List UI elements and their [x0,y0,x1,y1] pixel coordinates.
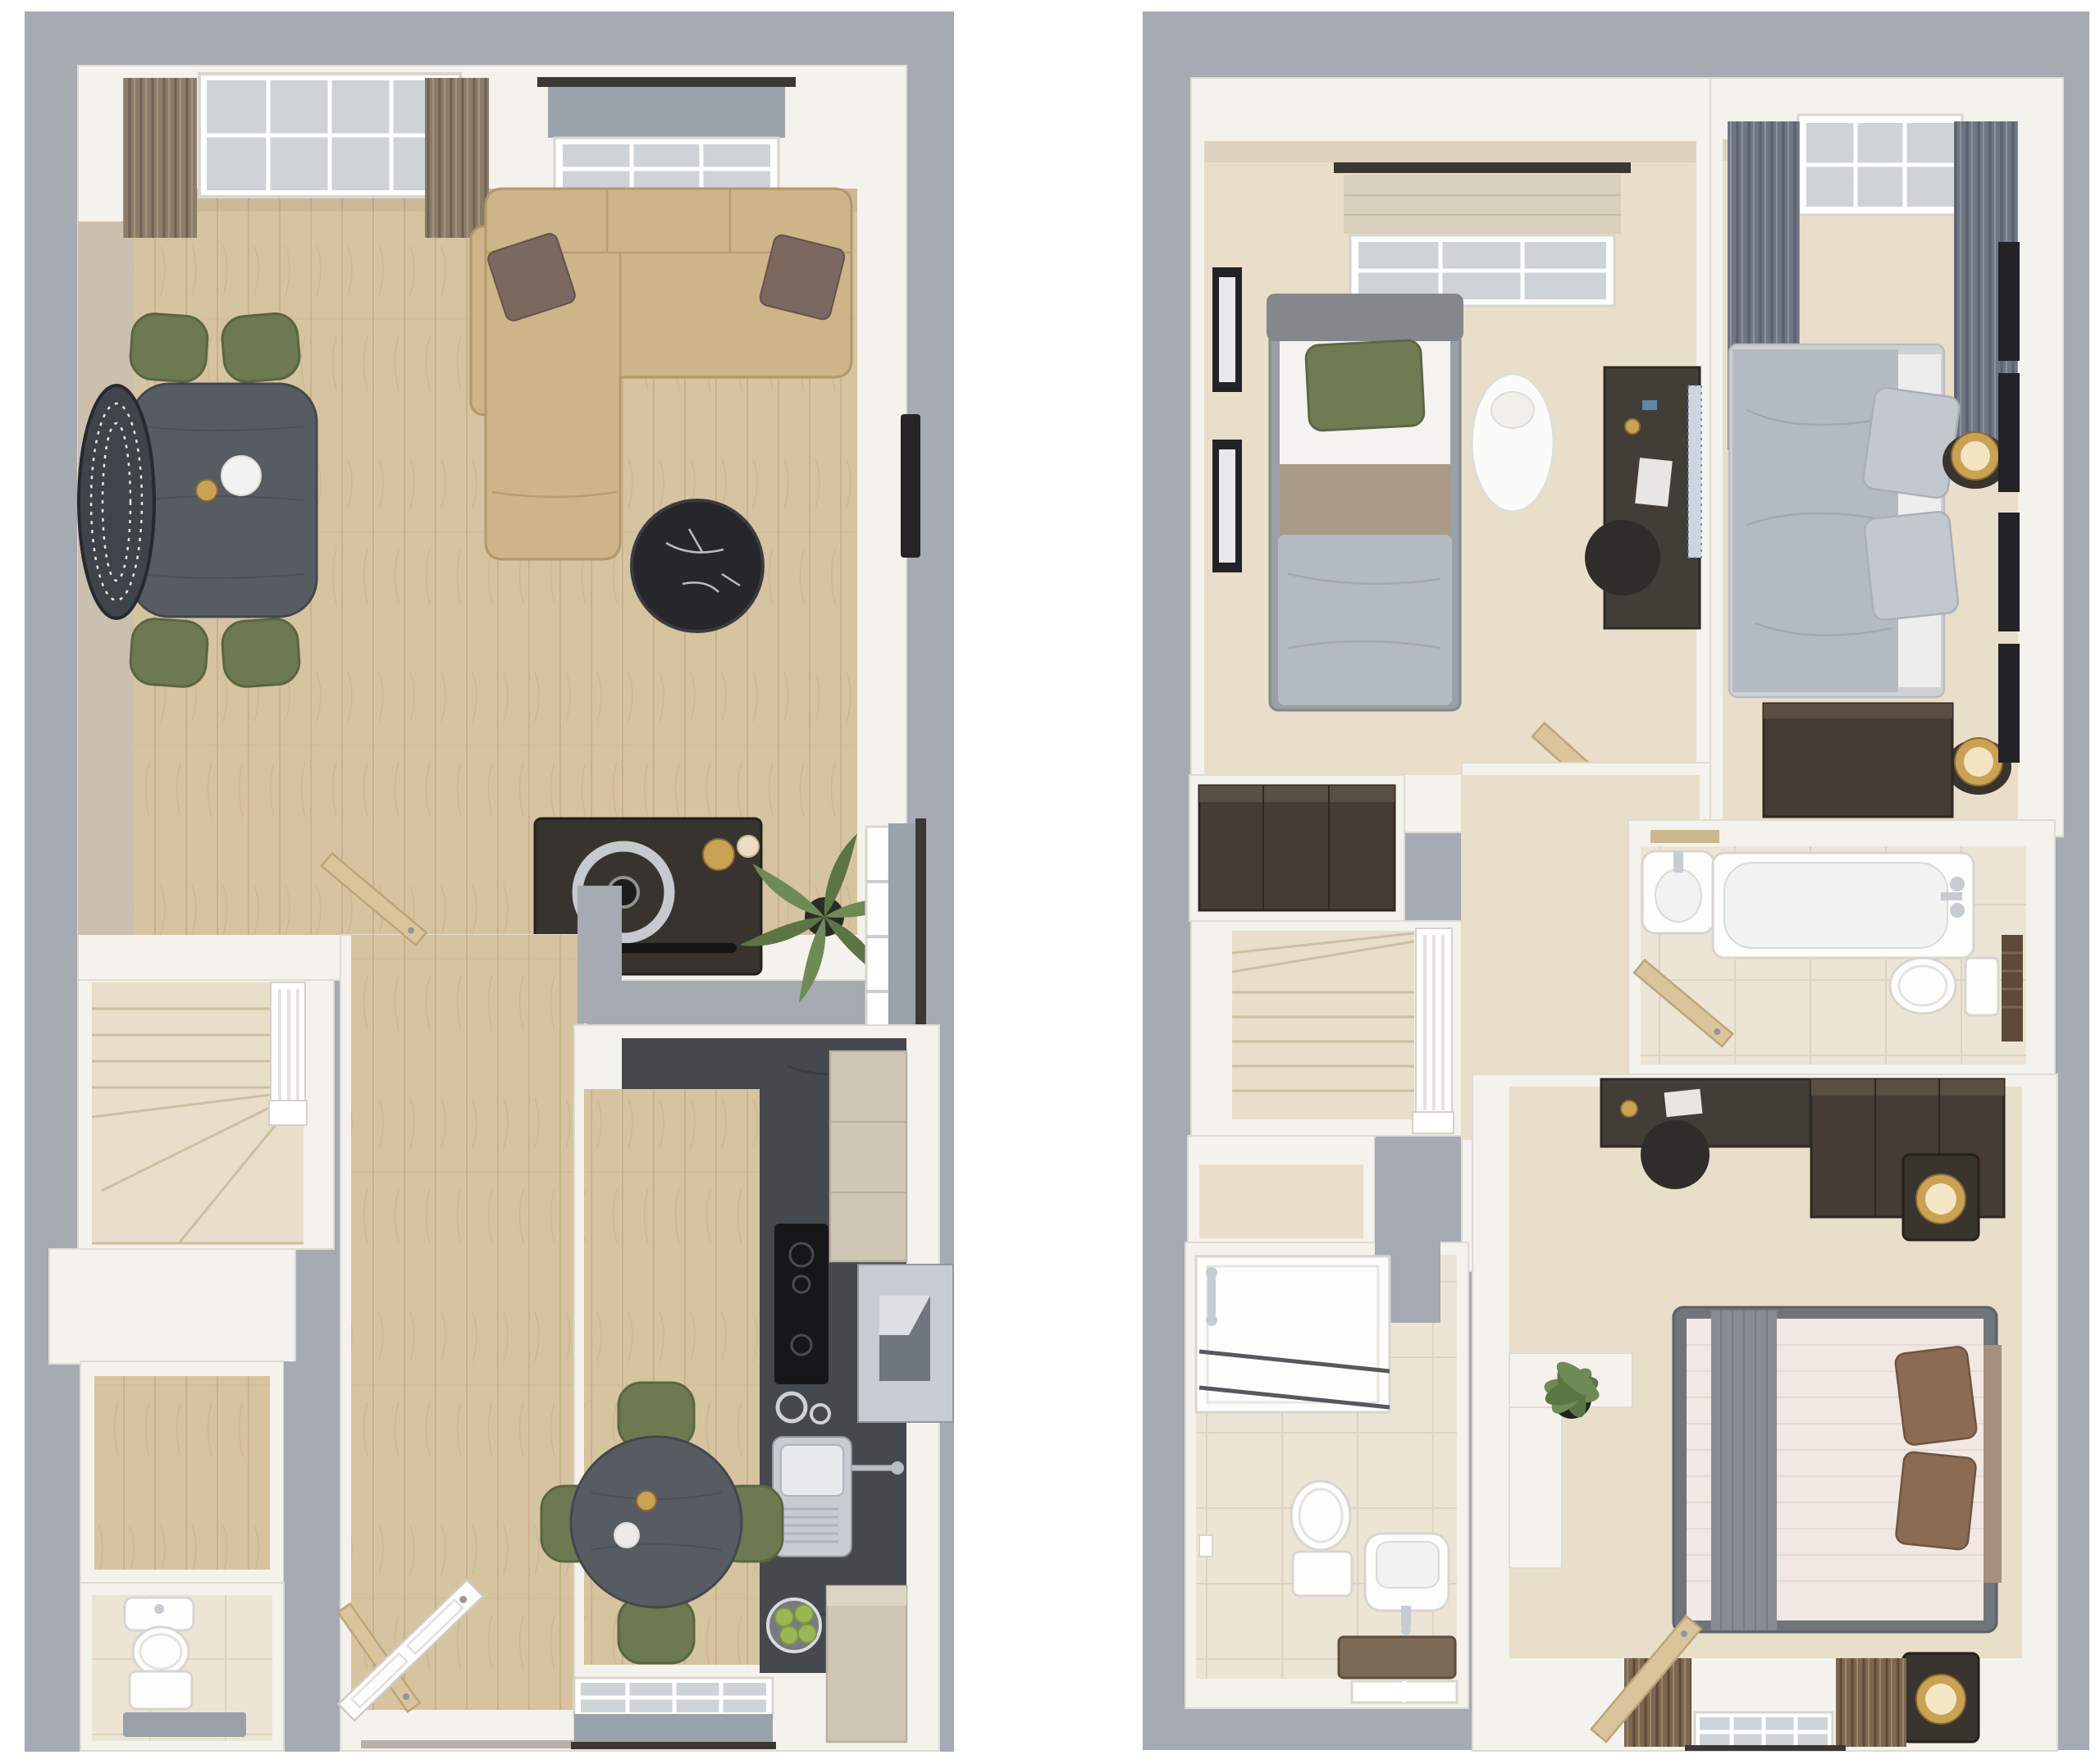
double-bed [1673,1307,2002,1632]
wooden-shelf [1650,830,1719,843]
flowers [614,1523,639,1547]
wall-art [1998,513,2020,631]
bath [1713,853,1974,958]
toilet [1890,958,1998,1015]
shower-valve [1207,1276,1216,1315]
bedroom1-window [1798,115,1962,215]
brown-cushion [1895,1452,1976,1551]
induction-hob [774,1224,829,1384]
desk-chair [1585,520,1660,595]
kitchen-breakfast-room [541,1025,953,1751]
airing-cupboard [1188,1136,1375,1242]
double-bed [1729,344,1961,697]
brown-cushion [1895,1346,1978,1446]
kitchen-window-roman-blind [571,1678,776,1749]
toilet [130,1627,192,1709]
desk-chair [1641,1120,1710,1189]
window-roman-blind [537,77,796,200]
storage-cupboard [80,1361,335,1584]
wardrobe-alcove [1189,775,1404,921]
wall-art [1998,242,2020,361]
staircase [92,982,307,1243]
bedroom-2 [1472,1074,2057,1751]
single-bed [1267,294,1463,710]
desk-lamp [1621,1101,1637,1117]
cloakroom-wc [80,1583,284,1751]
bedroom-3 [1191,78,1710,832]
extractor-hood [858,1265,953,1422]
flower-plate [221,456,261,495]
floorplans-svg [0,0,2100,1764]
bedside-table-top [1903,1155,1979,1240]
curtain-right [425,78,489,238]
understairs-store [49,1249,295,1364]
marble-coffee-table [632,500,763,631]
pillow [1862,386,1961,499]
wash-basin [1642,851,1714,933]
headboard [1267,294,1463,341]
ground-floor-plan [25,11,954,1752]
wall-art [1998,373,2020,492]
green-cushion [1305,340,1424,431]
toilet-roll-holder [1199,1535,1212,1557]
shower-enclosure [1196,1256,1390,1412]
bedside-table-bottom [1903,1653,1979,1742]
wall-units [830,1051,906,1261]
curtain-left [123,78,197,238]
curtain-right [1836,1658,1906,1747]
wardrobe [1199,786,1395,910]
fruit-bowl [768,1599,820,1652]
first-floor-plan [1143,11,2089,1751]
tall-unit [827,1586,906,1742]
staircase-landing [1232,928,1454,1133]
bifold-patio-door [199,74,460,197]
bathroom [1628,820,2055,1091]
bedroom3-window-roman-blind [1334,162,1631,306]
bath-mat [1339,1637,1455,1678]
bath-mat [123,1712,246,1737]
basin [125,1598,194,1630]
pillow [1864,511,1959,621]
wall-art [1998,644,2020,763]
floorplan-canvas [0,0,2100,1764]
chest-of-drawers [1764,704,1952,817]
desk-lamp [1625,419,1640,434]
cup [637,1491,656,1511]
wall-tv [901,414,920,558]
patterned-rug [79,385,154,618]
quilted-headboard [1984,1345,2002,1583]
ensuite-window [1352,1681,1457,1702]
chrome-mixer [1941,892,1962,900]
vase [196,480,217,501]
bedroom-1 [1710,78,2063,836]
